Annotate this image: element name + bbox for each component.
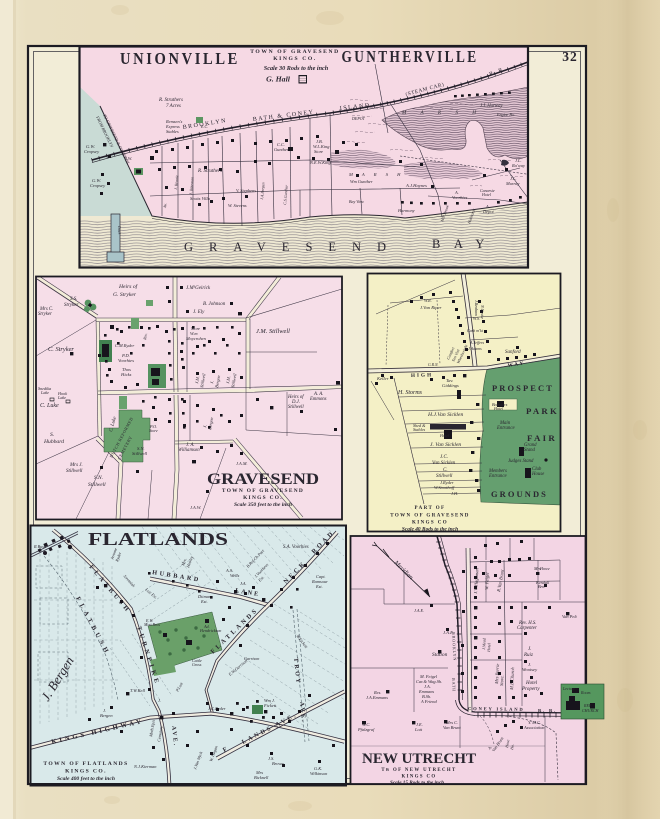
svg-text:A Friend: A Friend [420, 699, 437, 704]
svg-text:G.R.N.: G.R.N. [428, 363, 438, 367]
svg-text:Fickett: Fickett [263, 703, 277, 708]
svg-text:S.N.: S.N. [94, 475, 103, 481]
svg-text:Giddings: Giddings [442, 383, 459, 388]
svg-text:J. Ely: J. Ely [193, 310, 205, 315]
svg-text:Vanderbilts: Vanderbilts [437, 424, 456, 429]
svg-text:KINGS CO.: KINGS CO. [243, 495, 283, 501]
svg-text:Wilkinson: Wilkinson [310, 771, 328, 776]
svg-text:Howe: Howe [539, 566, 550, 571]
svg-text:Room.: Room. [580, 690, 591, 695]
svg-text:Stillwell: Stillwell [132, 451, 148, 456]
svg-text:Ra'way: Ra'way [511, 163, 525, 168]
svg-text:Lake: Lake [57, 395, 66, 400]
svg-text:Wm Gunther: Wm Gunther [350, 179, 373, 184]
svg-text:Gunther: Gunther [274, 147, 289, 152]
svg-text:Cash m'kt: Cash m'kt [467, 328, 484, 333]
svg-text:Stables: Stables [413, 427, 425, 432]
svg-text:Scale 30 Rods to the inch: Scale 30 Rods to the inch [264, 65, 329, 72]
svg-text:H. Storms: H. Storms [397, 390, 423, 396]
svg-text:Store: Store [314, 149, 323, 154]
svg-text:Tʦ OF NEW UTRECHT: Tʦ OF NEW UTRECHT [381, 768, 456, 773]
svg-text:Moycrohen: Moycrohen [185, 336, 207, 341]
svg-text:Hotel: Hotel [481, 192, 492, 197]
svg-text:HIGH: HIGH [411, 372, 433, 379]
svg-text:S.A. Voorhies: S.A. Voorhies [283, 545, 309, 550]
svg-text:Stillwell: Stillwell [288, 405, 304, 410]
svg-text:Engine Ho.: Engine Ho. [496, 112, 515, 117]
svg-text:Bicknell: Bicknell [254, 775, 269, 780]
svg-text:J.C.: J.C. [440, 455, 448, 460]
svg-text:Stillwell: Stillwell [436, 474, 453, 479]
svg-text:GROUNDS: GROUNDS [491, 490, 548, 499]
svg-text:Scale 350 feet to the inch: Scale 350 feet to the inch [234, 502, 292, 508]
svg-text:Carpenter: Carpenter [517, 626, 537, 631]
svg-text:R. Struthers: R. Struthers [197, 169, 222, 174]
svg-text:G. Hall: G. Hall [266, 75, 291, 84]
svg-text:DEPOT: DEPOT [351, 116, 366, 121]
svg-text:Hendrickson: Hendrickson [199, 628, 221, 633]
svg-text:PARK: PARK [526, 407, 559, 416]
svg-text:Association: Association [523, 725, 545, 730]
svg-text:H.J.Van Sicklen: H.J.Van Sicklen [427, 412, 463, 418]
svg-text:KINGS CO: KINGS CO [401, 775, 436, 780]
svg-text:W.R.: W.R. [424, 298, 432, 303]
svg-text:GRAVESEND: GRAVESEND [207, 471, 319, 488]
svg-text:GRAVESEND: GRAVESEND [184, 240, 402, 254]
svg-text:J.: J. [158, 698, 161, 703]
svg-text:R. R.: R. R. [538, 708, 557, 713]
svg-text:Lott: Lott [414, 727, 423, 732]
svg-text:J.: J. [528, 647, 531, 652]
svg-text:FAIR: FAIR [527, 434, 557, 443]
svg-text:KINGS CO.: KINGS CO. [273, 56, 317, 62]
svg-text:Bergen: Bergen [100, 713, 113, 718]
svg-text:Cropsey: Cropsey [90, 183, 106, 188]
svg-text:J.Adams: J.Adams [468, 346, 482, 351]
svg-text:Mrs J.: Mrs J. [69, 463, 83, 468]
svg-text:House: House [531, 472, 545, 477]
svg-text:Hotel: Hotel [486, 642, 492, 653]
svg-text:Stryker: Stryker [38, 312, 52, 317]
svg-text:Harmony: Harmony [397, 208, 415, 213]
svg-text:Van Brunt: Van Brunt [443, 725, 461, 730]
svg-text:TOWN OF GRAVESEND: TOWN OF GRAVESEND [250, 49, 340, 55]
svg-text:M A R S H: M A R S H [401, 110, 483, 116]
svg-text:Murray: Murray [505, 181, 519, 186]
svg-text:Voorhies: Voorhies [118, 358, 134, 363]
svg-text:Hotel: Hotel [493, 406, 504, 411]
svg-text:J.A.: J.A. [240, 581, 247, 586]
svg-text:C. Luke: C. Luke [40, 403, 59, 409]
svg-text:Stables: Stables [166, 129, 179, 134]
svg-text:TOWN OF GRAVESEND: TOWN OF GRAVESEND [390, 514, 470, 519]
svg-text:Scale 40 Rods to the inch: Scale 40 Rods to the inch [402, 527, 458, 533]
svg-text:Stand: Stand [524, 448, 536, 453]
svg-text:S.: S. [50, 432, 54, 438]
svg-text:Entrance: Entrance [488, 474, 507, 479]
svg-text:A.Jeffers: A.Jeffers [469, 340, 485, 345]
svg-text:Judges Stand: Judges Stand [508, 459, 534, 464]
svg-text:PROSPECT: PROSPECT [492, 384, 554, 393]
svg-text:Stillwell: Stillwell [88, 482, 106, 488]
svg-text:J.A.W.: J.A.W. [190, 505, 201, 510]
svg-text:Voorhies: Voorhies [452, 195, 468, 200]
svg-text:BATH: BATH [451, 678, 457, 692]
svg-text:Depot: Depot [482, 209, 495, 214]
svg-text:T.W.Kell: T.W.Kell [130, 688, 146, 693]
svg-text:R.Bush: R.Bush [33, 544, 46, 549]
svg-text:Scotts Villa: Scotts Villa [190, 196, 211, 201]
svg-text:V. Stephens: V. Stephens [236, 188, 256, 193]
svg-text:Lecture: Lecture [562, 686, 575, 691]
svg-text:Sanford: Sanford [505, 350, 521, 355]
svg-text:Store.: Store. [499, 675, 505, 686]
svg-text:FLATLANDS: FLATLANDS [88, 529, 228, 549]
svg-text:NEW UTRECHT: NEW UTRECHT [362, 751, 476, 767]
svg-text:W.S.: W.S. [473, 316, 480, 321]
svg-text:C.: C. [443, 468, 448, 473]
svg-text:Dock: Dock [117, 225, 122, 235]
svg-text:Av.: Av. [162, 203, 167, 209]
svg-text:UNIONVILLE: UNIONVILLE [120, 49, 240, 68]
svg-text:Hotel: Hotel [439, 433, 450, 438]
svg-text:Hubbard: Hubbard [43, 439, 64, 445]
svg-text:BAY: BAY [432, 237, 498, 251]
svg-text:S.S.: S.S. [70, 297, 78, 302]
svg-text:Pfalzgraf: Pfalzgraf [357, 727, 375, 732]
svg-text:KINGS CO.: KINGS CO. [65, 769, 107, 775]
svg-text:W. Stevens: W. Stevens [228, 203, 247, 208]
svg-text:GUNTHERVILLE: GUNTHERVILLE [342, 47, 479, 66]
svg-text:Store: Store [149, 428, 158, 433]
svg-text:J.L.Harway: J.L.Harway [480, 104, 504, 109]
svg-text:J.H.: J.H. [451, 491, 458, 496]
svg-text:Gross: Gross [192, 662, 202, 667]
svg-text:Garrison: Garrison [244, 656, 259, 661]
svg-text:Van Sicklen: Van Sicklen [432, 461, 456, 466]
svg-text:E.C.: E.C. [200, 124, 208, 129]
svg-text:J.M. Stillwell: J.M. Stillwell [256, 328, 290, 335]
svg-text:Hicks: Hicks [120, 372, 132, 377]
svg-text:Mott Bros: Mott Bros [143, 622, 160, 627]
svg-text:S.W.: S.W. [125, 156, 132, 161]
svg-text:CONEY ISLAND: CONEY ISLAND [468, 706, 525, 712]
svg-text:Property: Property [521, 687, 540, 692]
svg-text:J. Van Sicklen: J. Van Sicklen [430, 442, 461, 448]
svg-text:TOWN OF FLATLANDS: TOWN OF FLATLANDS [43, 761, 128, 767]
svg-text:J.A.E.: J.A.E. [414, 608, 424, 613]
svg-text:32: 32 [562, 49, 578, 64]
svg-text:Stillwell: Stillwell [66, 469, 83, 474]
svg-text:Est.: Est. [200, 599, 208, 604]
svg-text:B. Johnson: B. Johnson [203, 302, 226, 307]
svg-text:Entrance: Entrance [496, 426, 515, 431]
svg-text:Wootsey: Wootsey [522, 667, 538, 672]
svg-text:Hotel: Hotel [525, 681, 538, 686]
svg-text:Scale 15 Rods to the inch: Scale 15 Rods to the inch [390, 780, 444, 786]
svg-text:Williamson: Williamson [178, 448, 200, 453]
svg-text:KINGS CO: KINGS CO [412, 521, 448, 526]
svg-text:Emmons: Emmons [309, 397, 327, 402]
svg-text:Cropsey: Cropsey [84, 149, 100, 154]
svg-text:J.Van Riper: J.Van Riper [420, 305, 442, 310]
svg-text:Ruiz: Ruiz [523, 653, 533, 658]
svg-text:PART OF: PART OF [415, 506, 446, 511]
svg-text:N.J.Kierman: N.J.Kierman [133, 764, 157, 769]
svg-text:Scale 400 feet to the inch: Scale 400 feet to the inch [57, 776, 115, 782]
svg-text:Stryker: Stryker [64, 303, 78, 308]
svg-text:TOWN OF GRAVESEND: TOWN OF GRAVESEND [222, 488, 304, 494]
svg-text:Bay View: Bay View [349, 199, 364, 204]
svg-text:Lake: Lake [40, 390, 49, 395]
svg-text:G. Stryker: G. Stryker [113, 292, 137, 298]
svg-text:7 Acres: 7 Acres [166, 104, 181, 109]
svg-text:A.J.Haynes: A.J.Haynes [405, 183, 427, 188]
svg-text:Heirs of: Heirs of [118, 283, 139, 290]
svg-text:C. Stryker: C. Stryker [48, 346, 74, 353]
svg-text:R. Struthers: R. Struthers [158, 98, 183, 103]
svg-text:W.Stoothoff: W.Stoothoff [434, 485, 455, 490]
svg-text:J.A.Emmans: J.A.Emmans [366, 695, 388, 700]
svg-text:J.A.M.: J.A.M. [236, 461, 248, 466]
svg-text:J.M¹Geirick: J.M¹Geirick [186, 285, 211, 291]
svg-text:Est.: Est. [315, 584, 323, 589]
svg-text:Wells: Wells [230, 573, 240, 578]
svg-text:CHURCH: CHURCH [582, 708, 600, 713]
svg-text:Van Pelt: Van Pelt [562, 614, 578, 619]
